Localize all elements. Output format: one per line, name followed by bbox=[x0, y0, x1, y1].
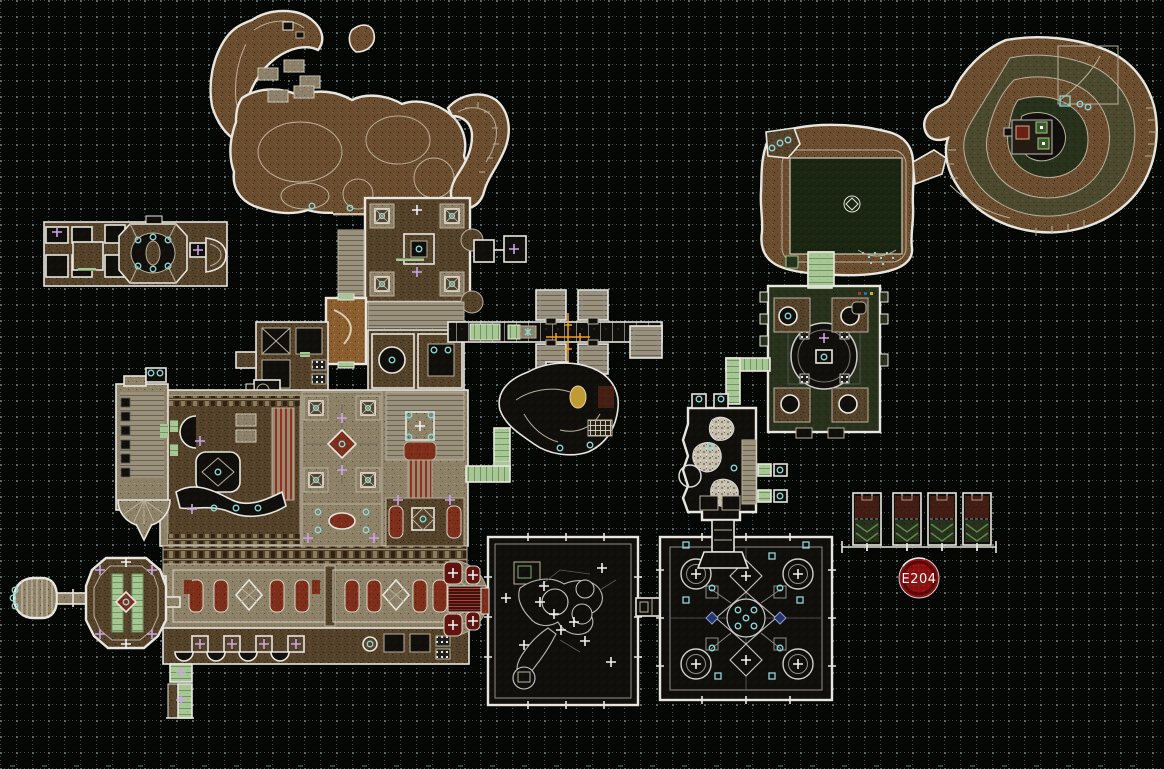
structure-east-cells[interactable] bbox=[842, 493, 996, 553]
annotation-e204[interactable]: E204 bbox=[899, 558, 939, 598]
structure-southeast-arena[interactable] bbox=[656, 533, 836, 704]
map-editor-canvas[interactable]: E204 bbox=[0, 0, 1164, 769]
annotation-label: E204 bbox=[901, 572, 936, 587]
structure-nw-temple[interactable] bbox=[44, 216, 227, 286]
structure-southwest-arena[interactable] bbox=[481, 533, 662, 709]
structure-west-wing[interactable] bbox=[116, 368, 170, 540]
